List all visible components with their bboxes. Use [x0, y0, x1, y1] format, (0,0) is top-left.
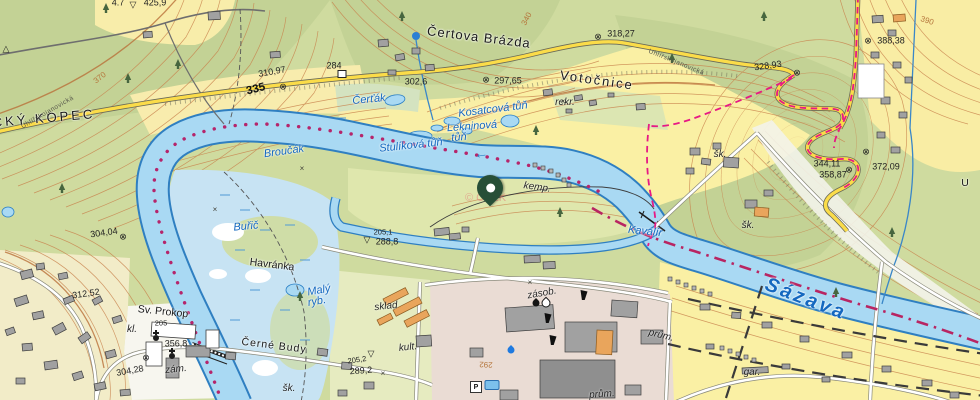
pin-dot	[486, 184, 495, 193]
location-pin-marker[interactable]	[477, 175, 503, 201]
pin-icon	[472, 170, 509, 207]
topo-map[interactable]: CKÝ KOPEC4.7▽425,9△370310,97⊗335284302,6…	[0, 0, 980, 400]
